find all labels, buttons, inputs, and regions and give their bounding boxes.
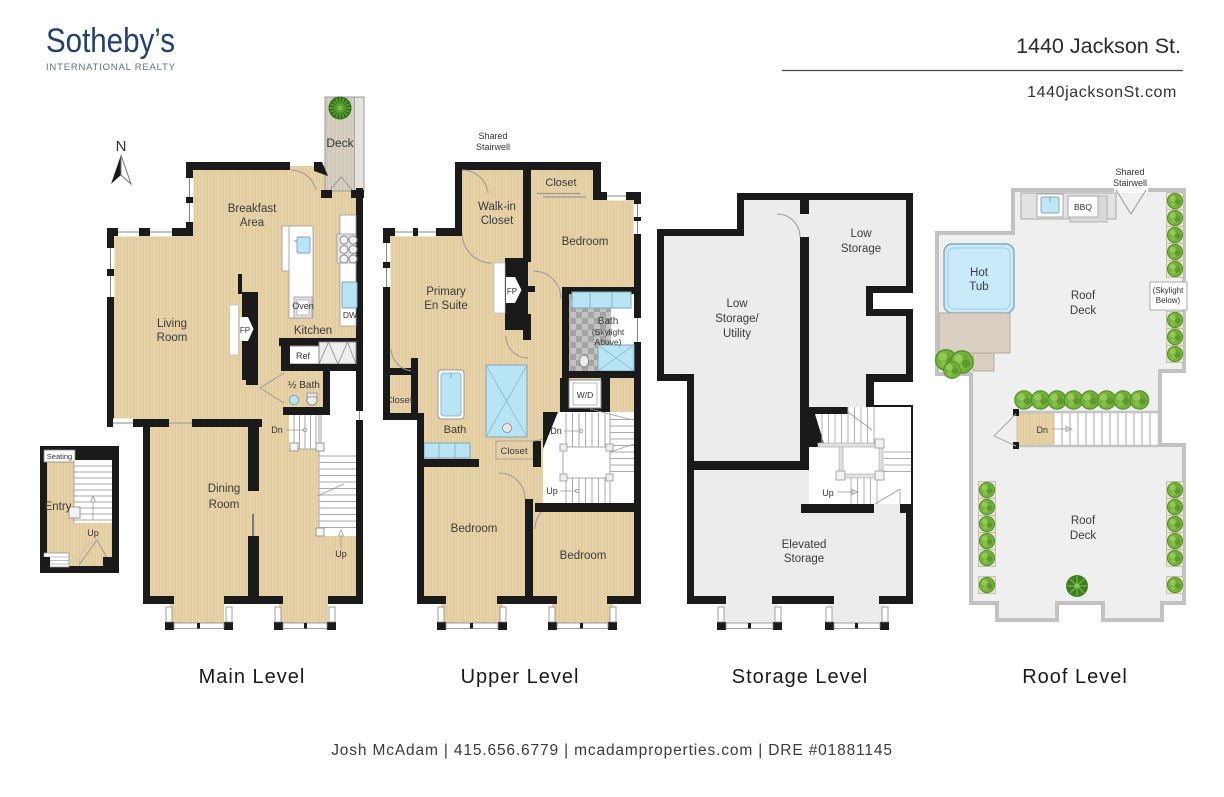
svg-text:Up: Up xyxy=(822,488,834,498)
svg-text:Seating: Seating xyxy=(47,452,72,461)
svg-text:Bedroom: Bedroom xyxy=(451,523,498,535)
svg-text:Up: Up xyxy=(335,549,347,559)
svg-text:Roof: Roof xyxy=(1071,515,1096,527)
svg-text:N: N xyxy=(116,138,127,155)
svg-text:Stairwell: Stairwell xyxy=(476,142,510,152)
svg-text:Dining: Dining xyxy=(208,483,241,495)
svg-text:Kitchen: Kitchen xyxy=(294,325,332,337)
svg-text:Bedroom: Bedroom xyxy=(560,550,607,562)
svg-text:Living: Living xyxy=(157,318,187,330)
svg-text:Room: Room xyxy=(209,499,240,511)
svg-text:Low: Low xyxy=(726,298,748,310)
svg-text:Bath: Bath xyxy=(598,316,619,327)
svg-text:Below): Below) xyxy=(1156,296,1181,305)
svg-text:Deck: Deck xyxy=(1070,530,1096,542)
svg-text:Bedroom: Bedroom xyxy=(562,236,609,248)
svg-text:Ref: Ref xyxy=(296,351,311,361)
svg-text:Closet: Closet xyxy=(501,446,528,457)
svg-text:1440jacksonSt.com: 1440jacksonSt.com xyxy=(1027,84,1177,101)
svg-text:Breakfast: Breakfast xyxy=(228,203,277,215)
svg-text:Primary: Primary xyxy=(426,286,466,298)
svg-text:En Suite: En Suite xyxy=(424,300,467,312)
svg-text:BBQ: BBQ xyxy=(1074,202,1092,212)
svg-text:INTERNATIONAL REALTY: INTERNATIONAL REALTY xyxy=(46,62,176,73)
svg-text:(Skylight: (Skylight xyxy=(592,327,625,337)
svg-text:Main Level: Main Level xyxy=(199,666,306,688)
svg-text:Roof: Roof xyxy=(1071,290,1096,302)
svg-text:Above): Above) xyxy=(595,337,622,347)
svg-text:1440 Jackson St.: 1440 Jackson St. xyxy=(1016,34,1181,58)
svg-text:Storage: Storage xyxy=(784,553,824,565)
svg-text:Shared: Shared xyxy=(1115,167,1144,177)
svg-text:Josh McAdam | 415.656.6779 |: Josh McAdam | 415.656.6779 | mcadamprope… xyxy=(331,742,893,759)
svg-text:Closet: Closet xyxy=(545,177,576,189)
svg-text:Upper Level: Upper Level xyxy=(461,666,580,688)
svg-text:Storage: Storage xyxy=(841,243,881,255)
svg-text:Up: Up xyxy=(546,486,558,496)
svg-text:Low: Low xyxy=(850,228,872,240)
svg-text:Walk-in: Walk-in xyxy=(478,201,516,213)
svg-text:Storage/: Storage/ xyxy=(715,313,759,325)
svg-text:Oven: Oven xyxy=(292,301,314,311)
svg-text:Dn: Dn xyxy=(550,426,562,436)
svg-text:Tub: Tub xyxy=(969,281,988,293)
svg-text:FP: FP xyxy=(240,326,250,335)
svg-text:Up: Up xyxy=(87,528,99,538)
svg-text:Elevated: Elevated xyxy=(782,539,827,551)
svg-text:Closet: Closet xyxy=(481,215,514,227)
svg-text:Dn: Dn xyxy=(271,425,283,435)
svg-text:Roof Level: Roof Level xyxy=(1022,666,1128,688)
svg-text:DW: DW xyxy=(343,310,357,320)
svg-text:Bath: Bath xyxy=(444,424,467,436)
svg-text:Deck: Deck xyxy=(326,136,354,150)
svg-text:Area: Area xyxy=(240,217,265,229)
svg-text:Utility: Utility xyxy=(723,328,751,340)
svg-text:Storage Level: Storage Level xyxy=(732,666,868,688)
svg-text:Entry: Entry xyxy=(45,501,72,513)
svg-text:Shared: Shared xyxy=(478,131,507,141)
svg-text:½ Bath: ½ Bath xyxy=(288,380,320,391)
svg-text:Hot: Hot xyxy=(970,267,989,279)
svg-text:FP: FP xyxy=(507,287,517,296)
svg-text:Sotheby’s: Sotheby’s xyxy=(46,22,175,60)
svg-text:(Skylight: (Skylight xyxy=(1153,286,1184,295)
svg-text:Dn: Dn xyxy=(1036,425,1048,435)
svg-text:Deck: Deck xyxy=(1070,305,1096,317)
svg-text:Room: Room xyxy=(157,332,188,344)
svg-text:W/D: W/D xyxy=(577,390,594,400)
